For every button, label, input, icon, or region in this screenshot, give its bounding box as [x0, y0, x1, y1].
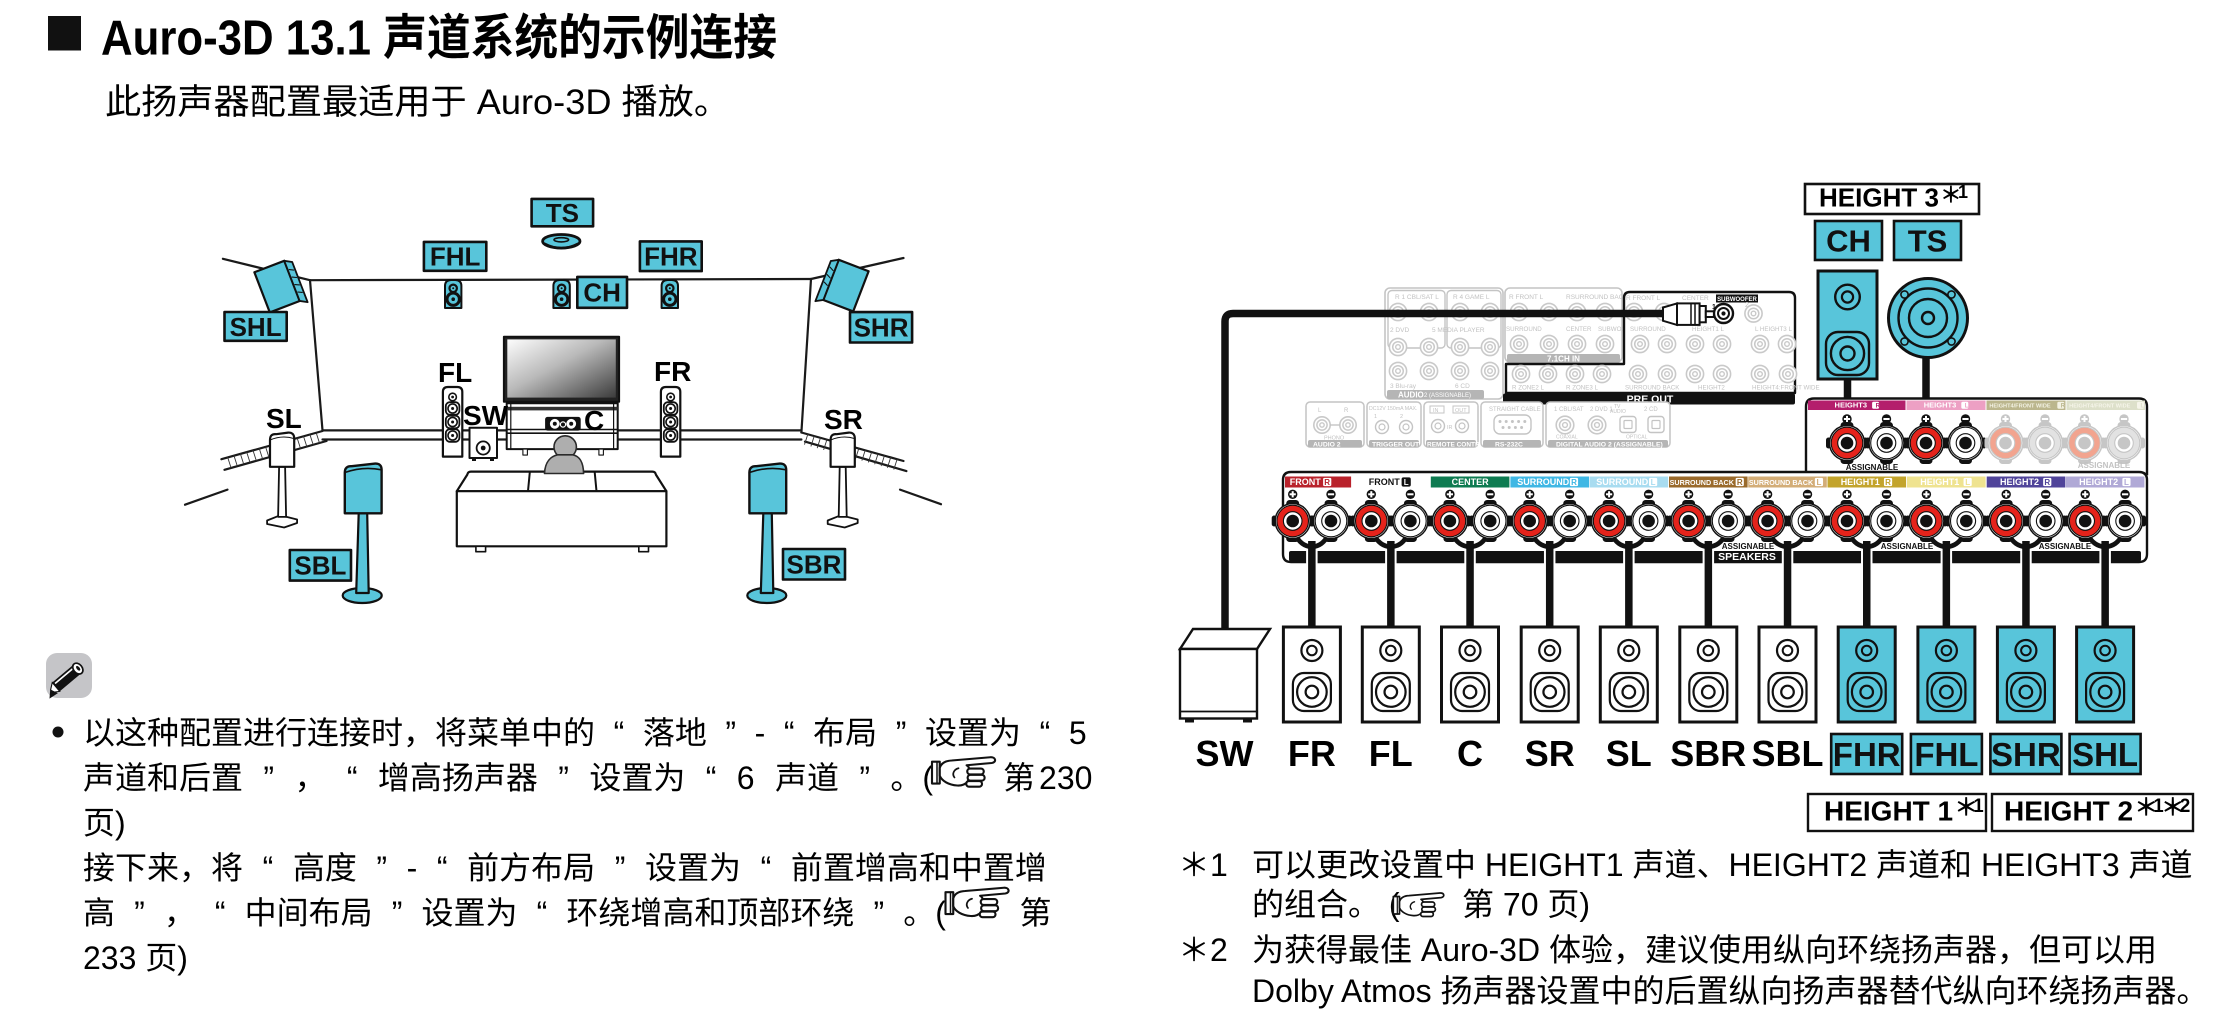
svg-text:SURROUND BACK: SURROUND BACK	[1625, 385, 1680, 392]
svg-text:SR: SR	[1525, 733, 1575, 774]
svg-text:ASSIGNABLE: ASSIGNABLE	[1722, 542, 1775, 551]
svg-text:6 CD: 6 CD	[1455, 383, 1470, 390]
svg-text:L: L	[1404, 478, 1409, 487]
svg-text:SPEAKERS: SPEAKERS	[1718, 551, 1776, 563]
svg-text:CENTER: CENTER	[1566, 326, 1592, 333]
svg-text:R: R	[2061, 404, 2066, 410]
svg-text:L: L	[1965, 404, 1969, 410]
svg-text:以这种配置进行连接时，将菜单中的 “ 落地 ” - “ 布局: 以这种配置进行连接时，将菜单中的 “ 落地 ” - “ 布局 ” 设置为 “ 5	[83, 715, 1087, 751]
svg-text:SURROUND: SURROUND	[1630, 326, 1666, 333]
svg-text:HEIGHT2: HEIGHT2	[2079, 477, 2118, 487]
svg-text:SURROUND BACK: SURROUND BACK	[1670, 478, 1735, 487]
svg-text:SURROUND: SURROUND	[1517, 477, 1570, 487]
svg-text:L: L	[2124, 478, 2129, 487]
svg-text:高 ” ， “ 中间布局 ” 设置为 “ 环绕增高和顶部环绕: 高 ” ， “ 中间布局 ” 设置为 “ 环绕增高和顶部环绕 ” 。(	[83, 895, 946, 931]
svg-text:CH: CH	[1826, 224, 1871, 259]
svg-text:为获得最佳 Auro-3D 体验，建议使用纵向环绕扬声器，但: 为获得最佳 Auro-3D 体验，建议使用纵向环绕扬声器，但可以用	[1252, 932, 2157, 968]
svg-text:ASSIGNABLE: ASSIGNABLE	[2078, 461, 2131, 470]
svg-text:R: R	[1737, 478, 1743, 487]
svg-text:HEIGHT4:FRONT WIDE: HEIGHT4:FRONT WIDE	[1752, 385, 1820, 392]
svg-text:FR: FR	[1288, 733, 1336, 774]
svg-text:FHL: FHL	[430, 242, 481, 272]
svg-text:HEIGHT2: HEIGHT2	[1698, 385, 1725, 392]
svg-text:7.1CH IN: 7.1CH IN	[1547, 355, 1580, 364]
svg-text:2 DVD: 2 DVD	[1390, 327, 1409, 334]
svg-text:FR: FR	[654, 356, 691, 387]
svg-text:Dolby Atmos 扬声器设置中的后置纵向扬声器替代纵向: Dolby Atmos 扬声器设置中的后置纵向扬声器替代纵向环绕扬声器。	[1252, 973, 2209, 1009]
svg-text:2: 2	[1400, 414, 1403, 420]
svg-text:HEIGHT4/FRONT WIDE: HEIGHT4/FRONT WIDE	[2069, 404, 2130, 410]
svg-text:R ZONE2 L: R ZONE2 L	[1512, 385, 1545, 392]
svg-text:AUDIO: AUDIO	[1610, 409, 1626, 415]
svg-text:ASSIGNABLE: ASSIGNABLE	[1881, 542, 1934, 551]
svg-text:HEIGHT1: HEIGHT1	[1841, 477, 1880, 487]
svg-text:ASSIGNABLE: ASSIGNABLE	[1846, 463, 1899, 472]
svg-text:DIGITAL AUDIO 2 (ASSIGNABLE): DIGITAL AUDIO 2 (ASSIGNABLE)	[1556, 442, 1663, 449]
svg-text:SW: SW	[1196, 733, 1254, 774]
svg-text:1: 1	[1374, 414, 1377, 420]
svg-text:233 页): 233 页)	[83, 940, 188, 976]
svg-text:＊2: ＊2	[1178, 932, 1228, 968]
svg-text:SURROUND BACK: SURROUND BACK	[1749, 478, 1814, 487]
svg-text:HEIGHT1 L: HEIGHT1 L	[1692, 326, 1725, 333]
svg-text:3 Blu-ray: 3 Blu-ray	[1390, 383, 1417, 390]
svg-text:FRONT: FRONT	[1290, 477, 1321, 487]
svg-text:1: 1	[1712, 304, 1716, 311]
svg-text:DC12V 150mA MAX.: DC12V 150mA MAX.	[1369, 406, 1417, 412]
svg-text:R ZONE3 L: R ZONE3 L	[1566, 385, 1599, 392]
svg-text:COAXIAL: COAXIAL	[1556, 435, 1578, 441]
svg-text:L: L	[2141, 404, 2145, 410]
svg-text:2 (ASSIGNABLE): 2 (ASSIGNABLE)	[1424, 393, 1471, 399]
svg-text:1 CBL/SAT: 1 CBL/SAT	[1554, 407, 1584, 413]
svg-text:R FRONT L: R FRONT L	[1626, 295, 1661, 302]
svg-text:HEIGHT2: HEIGHT2	[2000, 477, 2039, 487]
svg-text:SHL: SHL	[2072, 736, 2138, 773]
svg-text:R: R	[1344, 408, 1349, 414]
svg-text:R: R	[2044, 478, 2050, 487]
svg-text:L: L	[1816, 478, 1821, 487]
svg-text:SR: SR	[824, 404, 863, 435]
svg-text:R: R	[1885, 478, 1891, 487]
svg-text:OUT: OUT	[1455, 408, 1467, 414]
svg-text:SHL: SHL	[230, 312, 282, 342]
svg-text:此扬声器配置最适用于 Auro-3D 播放。: 此扬声器配置最适用于 Auro-3D 播放。	[105, 82, 730, 122]
svg-text:声道和后置 ” ， “ 增高扬声器 ” 设置为 “ 6 声道: 声道和后置 ” ， “ 增高扬声器 ” 设置为 “ 6 声道 ” 。(	[83, 760, 933, 796]
svg-text:SBL: SBL	[1752, 733, 1824, 774]
svg-text:RS-232C: RS-232C	[1495, 442, 1523, 449]
svg-text:HEIGHT1: HEIGHT1	[1920, 477, 1959, 487]
svg-text:R: R	[1324, 478, 1330, 487]
svg-text:R: R	[1876, 404, 1881, 410]
svg-text:SHR: SHR	[854, 313, 909, 343]
svg-text:CENTER: CENTER	[1682, 295, 1709, 302]
svg-text:IR: IR	[1447, 425, 1453, 431]
svg-text:HEIGHT3: HEIGHT3	[1924, 401, 1957, 410]
svg-text:R 4 GAME L: R 4 GAME L	[1453, 294, 1490, 301]
svg-text:的组合。 (: 的组合。 (	[1252, 887, 1400, 923]
svg-text:REMOTE CONTROL: REMOTE CONTROL	[1427, 442, 1489, 449]
svg-text:OPTICAL: OPTICAL	[1626, 435, 1648, 441]
svg-text:接下来，将 “ 高度 ” - “ 前方布局 ” 设置为 “: 接下来，将 “ 高度 ” - “ 前方布局 ” 设置为 “ 前置增高和中置增	[83, 850, 1047, 886]
svg-text:页): 页)	[83, 805, 126, 841]
svg-text:SURROUND: SURROUND	[1596, 477, 1649, 487]
svg-text:SUBWOOFER: SUBWOOFER	[1717, 297, 1757, 303]
svg-text:＊1: ＊1	[1178, 847, 1228, 883]
svg-text:可以更改设置中 HEIGHT1 声道、HEIGHT2 声道和: 可以更改设置中 HEIGHT1 声道、HEIGHT2 声道和 HEIGHT3 声…	[1252, 847, 2193, 883]
svg-text:TS: TS	[1908, 224, 1948, 259]
svg-text:FHR: FHR	[1833, 736, 1901, 773]
svg-text:SBL: SBL	[294, 551, 346, 581]
svg-text:FRONT: FRONT	[1369, 477, 1400, 487]
svg-text:C: C	[1457, 733, 1483, 774]
svg-text:IN: IN	[1433, 408, 1439, 414]
svg-text:SL: SL	[266, 403, 302, 434]
svg-text:第: 第	[1020, 895, 1052, 931]
svg-text:L HEIGHT3 L: L HEIGHT3 L	[1755, 326, 1792, 333]
svg-text:C: C	[584, 405, 604, 436]
svg-text:L: L	[1965, 478, 1970, 487]
svg-text:HEIGHT3: HEIGHT3	[1835, 401, 1868, 410]
svg-text:R FRONT L: R FRONT L	[1509, 294, 1544, 301]
svg-text:Auro-3D 13.1 声道系统的示例连接: Auro-3D 13.1 声道系统的示例连接	[101, 12, 777, 66]
svg-text:2: 2	[1745, 302, 1749, 309]
svg-text:SL: SL	[1606, 733, 1652, 774]
svg-text:STRAIGHT CABLE: STRAIGHT CABLE	[1489, 407, 1541, 413]
svg-text:TS: TS	[546, 198, 579, 228]
svg-text:HEIGHT4/FRONT WIDE: HEIGHT4/FRONT WIDE	[1989, 404, 2050, 410]
svg-text:CH: CH	[583, 278, 621, 308]
svg-text:FL: FL	[1369, 733, 1413, 774]
svg-text:SHR: SHR	[1991, 736, 2061, 773]
svg-text:SW: SW	[463, 400, 509, 431]
svg-text:FHR: FHR	[644, 242, 698, 272]
svg-text:SBR: SBR	[1670, 733, 1746, 774]
svg-text:R 1 CBL/SAT L: R 1 CBL/SAT L	[1395, 294, 1439, 301]
svg-text:FHL: FHL	[1914, 736, 1978, 773]
svg-text:ASSIGNABLE: ASSIGNABLE	[2039, 542, 2092, 551]
svg-text:SBR: SBR	[787, 550, 842, 580]
svg-text:TRIGGER OUT: TRIGGER OUT	[1372, 442, 1420, 449]
svg-text:第230: 第230	[1003, 760, 1092, 796]
svg-text:第 70 页): 第 70 页)	[1462, 887, 1590, 923]
svg-text:AUDIO 2: AUDIO 2	[1313, 442, 1341, 449]
svg-text:5 MEDIA PLAYER: 5 MEDIA PLAYER	[1432, 327, 1485, 334]
svg-text:AUDIO: AUDIO	[1398, 391, 1424, 400]
svg-text:CENTER: CENTER	[1452, 477, 1490, 487]
svg-text:R: R	[1571, 478, 1577, 487]
svg-text:SURROUND: SURROUND	[1506, 326, 1542, 333]
svg-text:FL: FL	[438, 357, 472, 388]
svg-text:L: L	[1651, 478, 1656, 487]
svg-text:2 CD: 2 CD	[1644, 407, 1658, 413]
